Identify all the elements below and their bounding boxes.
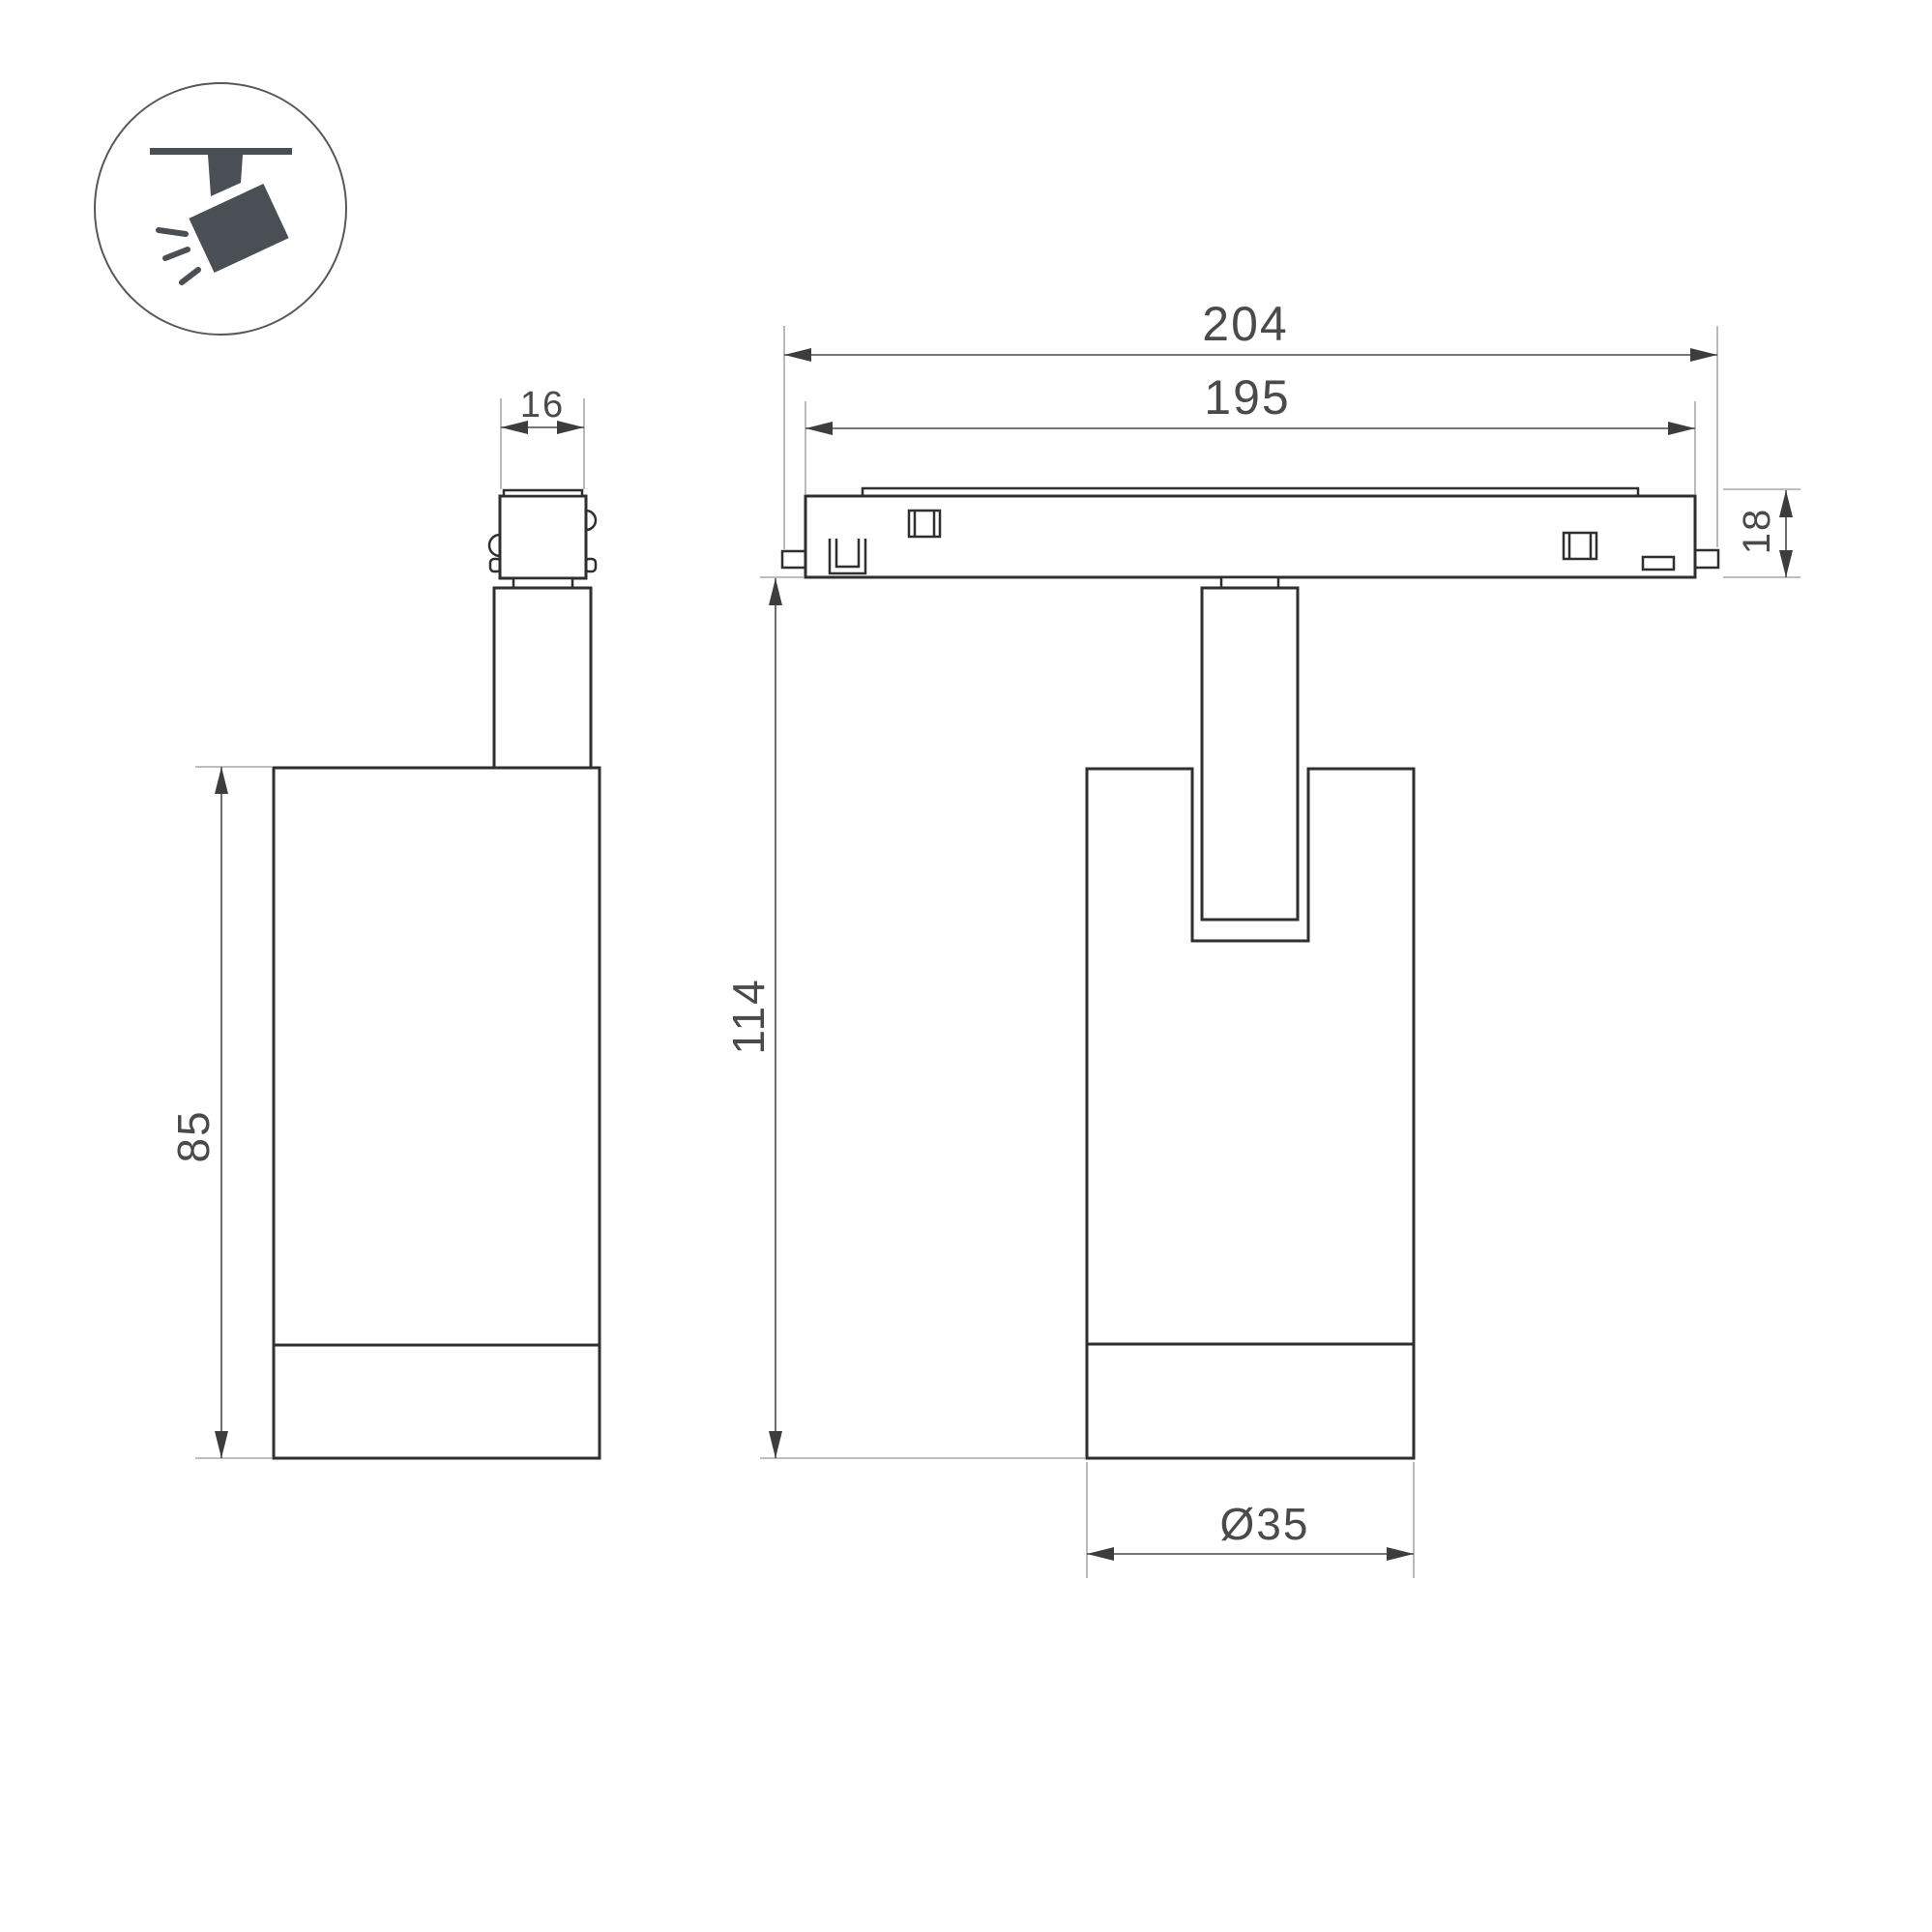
dim-arrow-204-left (784, 348, 811, 362)
side-view: 16 85 (168, 385, 600, 1458)
dimension-overall-length: 204 (784, 297, 1717, 362)
dim-arrow-d35-right (1387, 1547, 1414, 1561)
track-connector-side (500, 496, 586, 578)
icon-light-ray-2 (165, 249, 188, 258)
icon-light-ray-3 (182, 270, 198, 282)
dim-label-body-height: 85 (168, 1109, 219, 1162)
dimension-body-diameter: Ø35 (1087, 1499, 1414, 1561)
dimension-drawing-svg: 16 85 (0, 0, 1932, 1932)
swivel-stem-side (494, 588, 591, 770)
dim-arrow-85-bottom (215, 1431, 228, 1458)
dim-label-track-height: 18 (1736, 508, 1778, 555)
dim-arrow-204-right (1690, 348, 1717, 362)
icon-mount-stem (208, 155, 243, 196)
dim-arrow-18-bottom (1779, 550, 1793, 577)
dim-arrow-d35-left (1087, 1547, 1114, 1561)
dim-label-body-diameter: Ø35 (1220, 1499, 1310, 1549)
lamp-body-side (274, 768, 600, 1458)
dim-label-connector-width: 16 (520, 385, 565, 425)
track-end-tab-left (782, 551, 805, 568)
dimension-track-height: 18 (1736, 490, 1793, 577)
dim-label-track-length: 195 (1204, 370, 1290, 424)
track-end-tab-right (1695, 550, 1718, 568)
dimension-connector-width: 16 (501, 385, 584, 434)
dim-arrow-114-bottom (769, 1431, 782, 1458)
dim-arrow-114-top (769, 578, 782, 605)
stem-hub-front (1221, 577, 1278, 588)
dim-arrow-18-top (1779, 490, 1793, 517)
ceiling-track-spotlight-icon (95, 83, 346, 335)
dim-label-overall-height: 114 (723, 978, 774, 1054)
dimension-body-height: 85 (168, 767, 228, 1458)
connector-top-plate-side (504, 490, 582, 496)
icon-light-ray-1 (159, 230, 186, 234)
dim-arrow-195-left (805, 422, 833, 435)
swivel-stem-front (1202, 588, 1298, 920)
dim-arrow-85-top (215, 767, 228, 794)
icon-ceiling-track-bar (150, 148, 292, 155)
icon-spotlight-body (189, 184, 288, 273)
dim-arrow-195-right (1668, 422, 1695, 435)
dim-label-overall-length: 204 (1202, 297, 1288, 351)
front-view: 204 195 18 114 Ø35 (723, 297, 1800, 1578)
dimension-overall-height: 114 (723, 578, 782, 1458)
connector-spring-left (489, 535, 500, 556)
dimension-track-length: 195 (805, 370, 1695, 435)
technical-drawing-page: 16 85 (0, 0, 1932, 1932)
